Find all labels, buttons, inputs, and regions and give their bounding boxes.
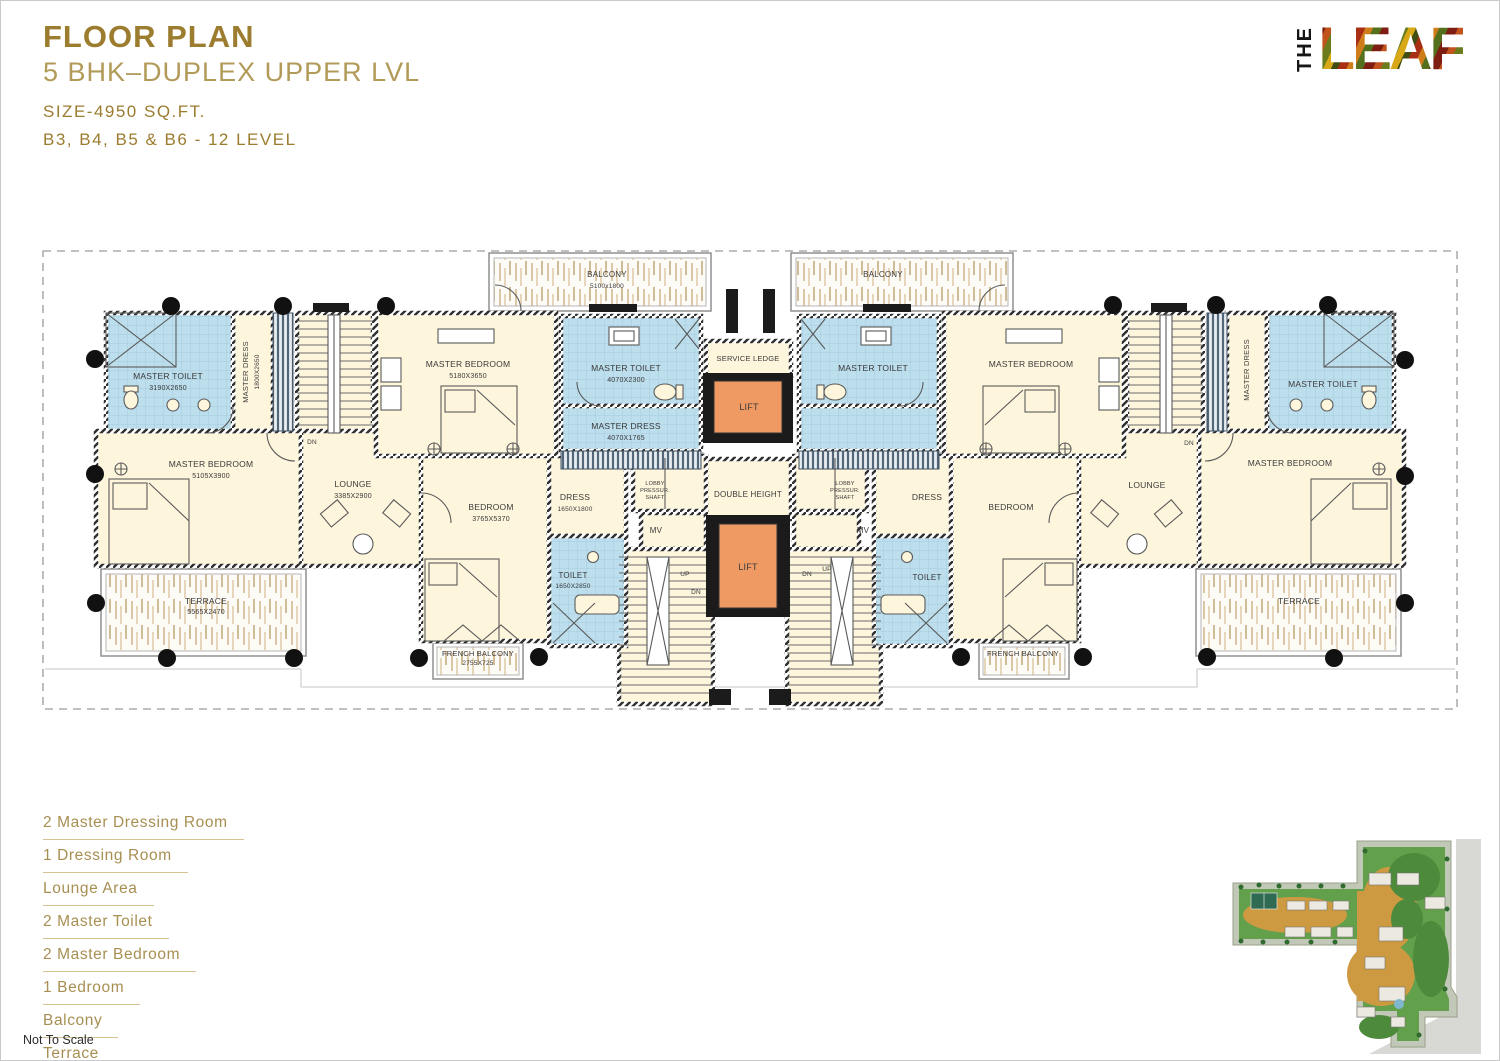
room-label: 3765X5370	[472, 516, 510, 523]
room-label: PRESSUR.	[640, 488, 670, 494]
room-label: 1800X2650	[254, 354, 261, 389]
column-dot	[377, 297, 395, 315]
room-label: BEDROOM	[468, 502, 513, 512]
room-label: SHAFT	[645, 495, 664, 501]
feature-list: 2 Master Dressing Room 1 Dressing Room L…	[43, 807, 244, 1061]
room-label: DN	[802, 571, 812, 578]
room-label: 4070X2300	[607, 377, 645, 384]
room-label: BALCONY	[863, 270, 903, 279]
toilet-right	[874, 536, 951, 646]
room-label: SERVICE LEDGE	[717, 354, 780, 363]
room-label: FRENCH BALCONY	[442, 649, 514, 658]
column-dot	[1074, 648, 1092, 666]
room-label: DRESS	[912, 492, 942, 502]
column-dot	[410, 649, 428, 667]
column-dot	[285, 649, 303, 667]
room-label: LIFT	[739, 402, 759, 412]
room-label: PRESSUR.	[830, 488, 860, 494]
room-label: 5565X2470	[187, 609, 225, 616]
room-label: MV	[857, 526, 870, 535]
feature-item: 2 Master Bedroom	[43, 939, 196, 972]
feature-item: 1 Dressing Room	[43, 840, 188, 873]
column-dot	[1396, 351, 1414, 369]
column-dot	[86, 465, 104, 483]
room-label: TOILET	[558, 571, 587, 580]
column-dot	[1396, 594, 1414, 612]
room-label: MASTER DRESS	[241, 341, 250, 403]
column-dot	[1198, 648, 1216, 666]
room-label: 2755X725	[462, 660, 493, 667]
room-label: 1650X1800	[557, 506, 592, 513]
column-dot	[952, 648, 970, 666]
column-dot	[162, 297, 180, 315]
room-label: DN	[691, 589, 701, 596]
room-label: BEDROOM	[988, 502, 1033, 512]
feature-item: Lounge Area	[43, 873, 154, 906]
room-label: MASTER DRESS	[1242, 339, 1251, 401]
not-to-scale-note: Not To Scale	[23, 1033, 94, 1047]
room-label: MASTER BEDROOM	[1248, 458, 1333, 468]
room-label: DOUBLE HEIGHT	[714, 490, 782, 499]
room-label: TOILET	[912, 573, 941, 582]
room-label: LOUNGE	[334, 479, 371, 489]
room-label: DRESS	[560, 492, 590, 502]
room-label: 4070X1765	[607, 435, 645, 442]
room-label: MV	[650, 526, 663, 535]
room-label: MASTER BEDROOM	[989, 359, 1074, 369]
room-label: MASTER TOILET	[1288, 379, 1358, 389]
terrace-right	[1201, 574, 1396, 651]
room-label: UP	[822, 566, 831, 573]
column-dot	[530, 648, 548, 666]
double-height-area	[704, 459, 791, 519]
room-label: MASTER BEDROOM	[169, 459, 254, 469]
room-label: SHAFT	[835, 495, 854, 501]
room-label: 3385X2900	[334, 493, 372, 500]
column-dot	[1104, 296, 1122, 314]
master-dress-blue-right	[799, 406, 939, 451]
room-label: FRENCH BALCONY	[987, 649, 1059, 658]
room-label: 5100x1800	[590, 283, 624, 290]
room-label: DN	[1184, 440, 1194, 447]
room-label: LOBBY	[835, 481, 854, 487]
room-label: MASTER TOILET	[591, 363, 661, 373]
room-label: LOBBY	[645, 481, 664, 487]
room-label: MASTER DRESS	[591, 421, 661, 431]
site-plan-thumbnail	[1229, 839, 1481, 1054]
feature-item: 2 Master Dressing Room	[43, 807, 244, 840]
feature-item: 1 Bedroom	[43, 972, 140, 1005]
column-dot	[1325, 649, 1343, 667]
column-dot	[87, 594, 105, 612]
column-dot	[1319, 296, 1337, 314]
room-label: DN	[307, 439, 317, 446]
room-label: TERRACE	[185, 596, 227, 606]
floor-plan-page: FLOOR PLAN 5 BHK–DUPLEX UPPER LVL SIZE-4…	[0, 0, 1500, 1061]
toilet-left	[549, 536, 626, 646]
column-dot	[1396, 467, 1414, 485]
room-label: 3190X2650	[149, 385, 187, 392]
column-dot	[86, 350, 104, 368]
room-label: UP	[680, 571, 689, 578]
mv-right	[794, 513, 859, 549]
core-column	[763, 289, 775, 333]
room-label: MASTER TOILET	[838, 363, 908, 373]
room-label: 5105X3900	[192, 473, 230, 480]
room-label: MASTER BEDROOM	[426, 359, 511, 369]
room-label: LIFT	[738, 562, 758, 572]
column-dot	[1207, 296, 1225, 314]
feature-item: 2 Master Toilet	[43, 906, 169, 939]
room-label: 1650X2850	[555, 583, 590, 590]
room-label: TERRACE	[1278, 596, 1320, 606]
room-label: 5180X3650	[449, 373, 487, 380]
master-toilet-right	[1267, 313, 1394, 431]
room-label: BALCONY	[587, 270, 627, 279]
core-column	[726, 289, 738, 333]
balcony-right	[796, 258, 1008, 306]
room-label: MASTER TOILET	[133, 371, 203, 381]
room-label: LOUNGE	[1128, 480, 1165, 490]
column-dot	[274, 297, 292, 315]
master-dress-left	[233, 313, 273, 431]
balcony-left	[494, 258, 706, 306]
column-dot	[158, 649, 176, 667]
